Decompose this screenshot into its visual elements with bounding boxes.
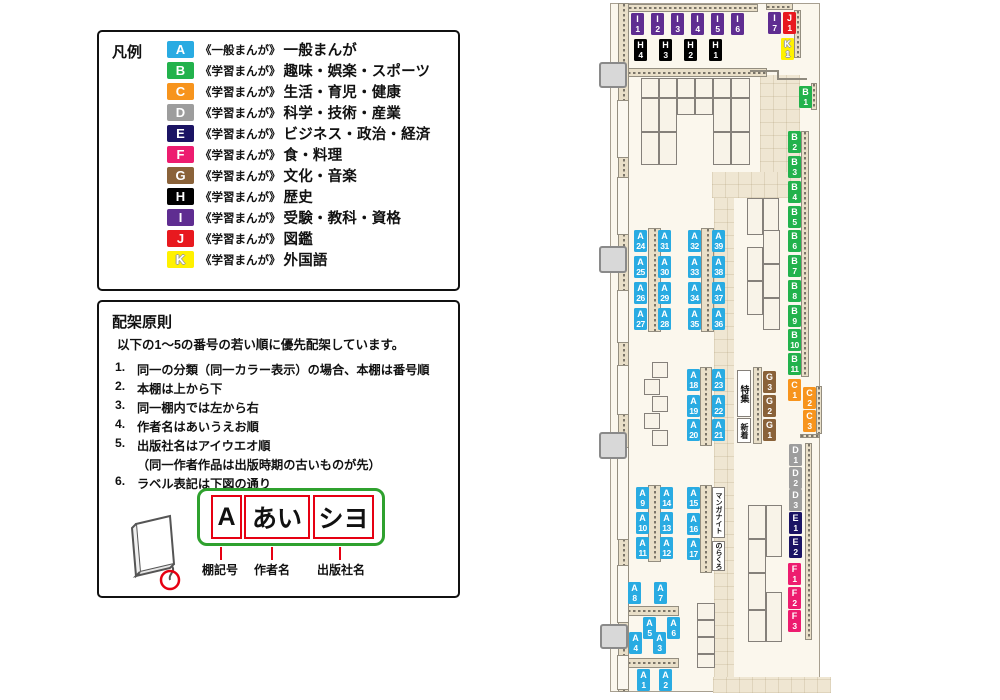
shelf-label-d2: D2 — [789, 467, 802, 489]
shelf-label-a20: A20 — [687, 419, 700, 441]
table-block — [763, 230, 780, 264]
shelf-label-a16: A16 — [687, 513, 700, 535]
floor-map: I1I2I3I4I5I6I7J1K1H4H3H2H1B1B2B3B4B5B6B7… — [0, 0, 1000, 700]
table-block — [659, 132, 677, 165]
table-block — [652, 430, 668, 446]
shelf-label-a25: A25 — [634, 256, 647, 278]
shelf-label-a10: A10 — [636, 512, 649, 534]
table-block — [766, 505, 782, 557]
shelf-label-i4: I4 — [691, 13, 704, 35]
door — [599, 246, 627, 273]
table-block — [697, 637, 715, 654]
shelf-label-a39: A39 — [712, 230, 725, 252]
wall-slat — [617, 100, 629, 158]
shelf-label-i6: I6 — [731, 13, 744, 35]
table-block — [748, 505, 766, 539]
shelf-label-a30: A30 — [658, 256, 671, 278]
table-block — [677, 78, 695, 98]
shelf-label-i1: I1 — [631, 13, 644, 35]
shelf-label-c1: C1 — [788, 379, 801, 401]
shelf-strip — [700, 485, 712, 573]
shelf-label-a31: A31 — [658, 230, 671, 252]
shelf-label-a22: A22 — [712, 395, 725, 417]
table-block — [695, 98, 713, 115]
shelf-label-a35: A35 — [688, 308, 701, 330]
shelf-label-b11: B11 — [788, 353, 801, 375]
shelf-label-h3: H3 — [659, 39, 672, 61]
table-block — [748, 610, 766, 642]
wall-line — [750, 70, 778, 72]
shelf-label-c3: C3 — [803, 410, 816, 432]
wall-shelf-strip — [628, 4, 758, 12]
walkway — [713, 677, 831, 693]
map-area-label: 新着 — [737, 418, 751, 443]
shelf-strip — [753, 367, 762, 444]
shelf-label-b4: B4 — [788, 181, 801, 203]
wall-line — [779, 78, 807, 80]
shelf-label-a18: A18 — [687, 369, 700, 391]
wall-shelf-strip — [766, 3, 793, 10]
shelf-label-g1: G1 — [763, 419, 776, 441]
wall-slat — [617, 290, 629, 343]
shelf-label-a24: A24 — [634, 230, 647, 252]
shelf-label-a11: A11 — [636, 537, 649, 559]
shelf-label-a15: A15 — [687, 487, 700, 509]
shelf-label-b2: B2 — [788, 131, 801, 153]
map-area-label: のらくろ — [712, 541, 725, 571]
shelf-label-h4: H4 — [634, 39, 647, 61]
shelf-strip — [816, 386, 822, 434]
shelf-label-a38: A38 — [712, 256, 725, 278]
shelf-label-a19: A19 — [687, 395, 700, 417]
table-block — [748, 539, 766, 573]
shelf-label-a8: A8 — [628, 582, 641, 604]
shelf-label-j1: J1 — [783, 12, 796, 34]
shelf-label-g2: G2 — [763, 395, 776, 417]
shelf-label-b6: B6 — [788, 230, 801, 252]
shelf-label-d1: D1 — [789, 444, 802, 466]
shelf-label-a7: A7 — [654, 582, 667, 604]
table-block — [641, 132, 659, 165]
shelf-label-f2: F2 — [788, 587, 801, 609]
table-block — [644, 379, 660, 395]
shelf-label-a37: A37 — [712, 282, 725, 304]
shelf-strip — [801, 131, 809, 377]
wall-shelf-strip — [800, 434, 820, 438]
shelf-label-b3: B3 — [788, 156, 801, 178]
shelf-strip — [700, 367, 712, 446]
table-block — [731, 98, 750, 132]
shelf-label-a29: A29 — [658, 282, 671, 304]
shelf-label-b8: B8 — [788, 280, 801, 302]
shelf-label-i7: I7 — [768, 12, 781, 34]
table-block — [713, 78, 731, 98]
wall-shelf-strip — [627, 68, 767, 77]
shelf-label-c2: C2 — [803, 387, 816, 409]
shelf-label-a3: A3 — [653, 632, 666, 654]
wall-shelf-strip — [627, 658, 679, 668]
table-block — [748, 573, 766, 610]
table-block — [697, 620, 715, 637]
table-block — [695, 78, 713, 98]
shelf-label-e2: E2 — [789, 536, 802, 558]
shelf-strip — [805, 443, 812, 640]
shelf-label-e1: E1 — [789, 512, 802, 534]
shelf-label-a12: A12 — [660, 537, 673, 559]
shelf-label-b1: B1 — [799, 86, 812, 108]
shelf-label-a32: A32 — [688, 230, 701, 252]
table-block — [713, 98, 731, 132]
wall-slat — [617, 447, 629, 540]
table-block — [747, 281, 763, 315]
wall-shelf-strip — [627, 606, 679, 616]
table-block — [641, 78, 659, 98]
table-block — [652, 362, 668, 378]
shelf-label-b7: B7 — [788, 255, 801, 277]
table-block — [652, 396, 668, 412]
shelf-label-i2: I2 — [651, 13, 664, 35]
shelf-label-a26: A26 — [634, 282, 647, 304]
page: 凡例 A《一般まんが》一般まんがB《学習まんが》趣味・娯楽・スポーツC《学習まん… — [0, 0, 1000, 700]
shelf-label-a17: A17 — [687, 538, 700, 560]
shelf-label-b5: B5 — [788, 206, 801, 228]
shelf-label-a9: A9 — [636, 487, 649, 509]
shelf-label-a13: A13 — [660, 512, 673, 534]
table-block — [747, 198, 763, 235]
shelf-label-a14: A14 — [660, 487, 673, 509]
table-block — [697, 654, 715, 668]
table-block — [763, 298, 780, 330]
door — [599, 62, 627, 88]
table-block — [659, 78, 677, 98]
shelf-label-k1: K1 — [781, 38, 794, 60]
shelf-label-a27: A27 — [634, 308, 647, 330]
shelf-label-i5: I5 — [711, 13, 724, 35]
shelf-label-b9: B9 — [788, 305, 801, 327]
shelf-label-a28: A28 — [658, 308, 671, 330]
shelf-label-d3: D3 — [789, 489, 802, 511]
table-block — [766, 592, 782, 642]
shelf-label-f1: F1 — [788, 563, 801, 585]
shelf-label-a4: A4 — [629, 632, 642, 654]
shelf-label-a1: A1 — [637, 669, 650, 691]
shelf-label-a2: A2 — [659, 669, 672, 691]
walkway — [712, 172, 800, 198]
map-area-label: マンガナイト — [712, 487, 725, 538]
shelf-label-a23: A23 — [712, 369, 725, 391]
table-block — [747, 247, 763, 281]
table-block — [677, 98, 695, 115]
table-block — [731, 78, 750, 98]
wall-slat — [617, 177, 629, 235]
door — [599, 432, 627, 459]
shelf-label-a21: A21 — [712, 419, 725, 441]
shelf-label-a36: A36 — [712, 308, 725, 330]
shelf-label-f3: F3 — [788, 610, 801, 632]
shelf-label-g3: G3 — [763, 371, 776, 393]
shelf-label-i3: I3 — [671, 13, 684, 35]
map-area-label: 特集 — [737, 370, 751, 417]
wall-slat — [617, 655, 629, 690]
table-block — [763, 264, 780, 298]
door — [600, 624, 628, 649]
shelf-label-a34: A34 — [688, 282, 701, 304]
table-block — [731, 132, 750, 165]
table-block — [697, 603, 715, 620]
shelf-label-a33: A33 — [688, 256, 701, 278]
shelf-label-b10: B10 — [788, 329, 801, 351]
wall-slat — [617, 365, 629, 415]
shelf-label-h2: H2 — [684, 39, 697, 61]
shelf-label-h1: H1 — [709, 39, 722, 61]
shelf-label-a6: A6 — [667, 617, 680, 639]
table-block — [641, 98, 659, 132]
table-block — [713, 132, 731, 165]
table-block — [644, 413, 660, 429]
table-block — [659, 98, 677, 132]
